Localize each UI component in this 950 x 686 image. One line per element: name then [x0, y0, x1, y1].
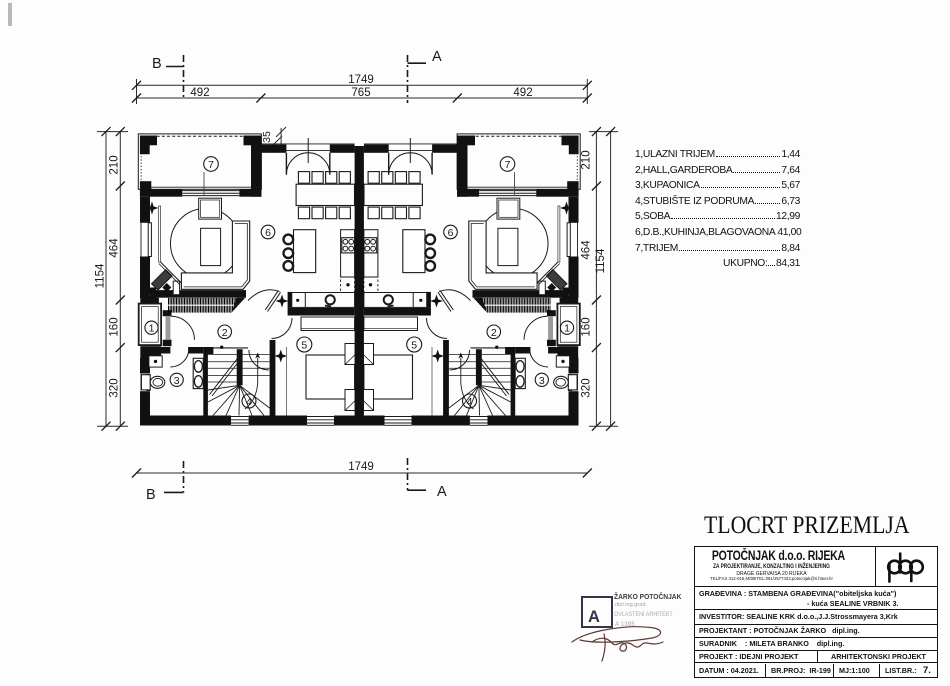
svg-text:2: 2: [491, 327, 497, 339]
svg-text:1749: 1749: [348, 461, 374, 473]
svg-text:464: 464: [109, 238, 121, 258]
svg-text:464: 464: [581, 240, 593, 260]
svg-text:35: 35: [261, 131, 273, 143]
svg-text:160: 160: [109, 317, 121, 336]
svg-text:1154: 1154: [95, 263, 107, 288]
svg-text:A: A: [432, 49, 442, 65]
svg-text:A: A: [437, 484, 447, 500]
svg-text:5: 5: [301, 340, 307, 352]
svg-text:320: 320: [109, 378, 121, 397]
svg-text:492: 492: [513, 87, 532, 99]
svg-text:2: 2: [222, 327, 228, 339]
svg-text:1: 1: [564, 323, 570, 335]
svg-text:7: 7: [505, 159, 511, 171]
svg-text:160: 160: [581, 317, 593, 336]
svg-text:1: 1: [149, 323, 155, 335]
svg-text:765: 765: [351, 87, 370, 99]
svg-text:7: 7: [208, 159, 214, 171]
svg-text:210: 210: [581, 150, 593, 169]
svg-text:6: 6: [448, 227, 454, 239]
svg-text:320: 320: [581, 378, 593, 397]
svg-text:3: 3: [539, 375, 545, 387]
svg-text:210: 210: [109, 155, 121, 174]
svg-text:6: 6: [265, 227, 271, 239]
svg-text:4: 4: [246, 396, 252, 408]
svg-text:492: 492: [190, 87, 209, 99]
svg-text:1154: 1154: [595, 248, 607, 273]
svg-text:B: B: [146, 487, 156, 503]
svg-text:5: 5: [411, 340, 417, 352]
svg-text:4: 4: [467, 396, 473, 408]
svg-text:B: B: [152, 56, 162, 72]
svg-text:1749: 1749: [348, 74, 374, 86]
svg-text:3: 3: [174, 375, 180, 387]
